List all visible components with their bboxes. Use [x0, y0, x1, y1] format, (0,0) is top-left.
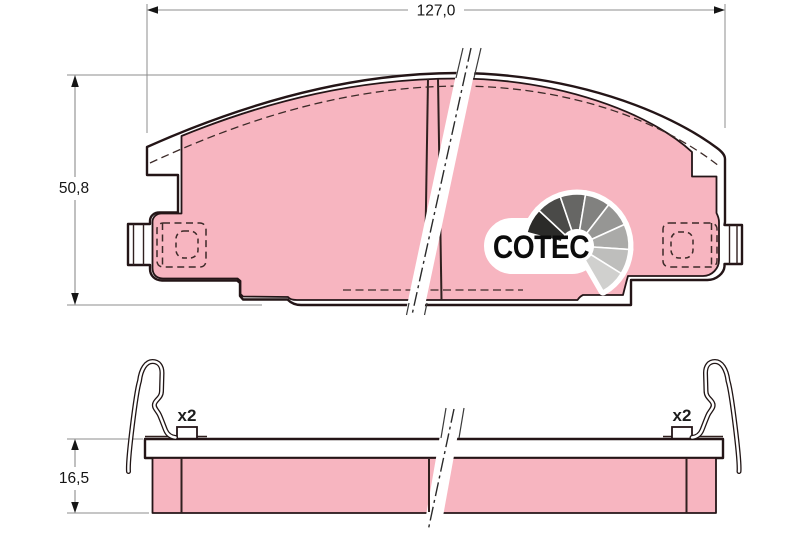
right-guide-tab — [672, 427, 692, 439]
dimension-width-value: 127,0 — [417, 3, 456, 20]
clip-count-label-left: x2 — [178, 406, 197, 425]
pad-edge-view: x2 x2 — [128, 362, 739, 533]
brake-pad-technical-drawing: 127,0 50,8 16,5 — [0, 0, 800, 533]
left-guide-tab — [177, 427, 197, 439]
dimension-thickness-value: 16,5 — [59, 470, 89, 487]
dimension-height-value: 50,8 — [59, 180, 89, 197]
pad-face-view — [128, 46, 742, 315]
backing-plate-edge — [145, 439, 723, 458]
arrowhead-up-icon — [71, 75, 79, 87]
drawing-canvas: 127,0 50,8 16,5 — [0, 0, 800, 533]
arrowhead-right-icon — [714, 6, 725, 14]
arrowhead-left-icon — [147, 6, 158, 14]
arrowhead-up-icon — [71, 439, 79, 450]
dimension-thickness: 16,5 — [59, 439, 149, 513]
clip-count-label-right: x2 — [673, 406, 692, 425]
arrowhead-down-icon — [71, 502, 79, 513]
arrowhead-down-icon — [71, 293, 79, 305]
logo-wordmark: COTEC — [493, 230, 589, 265]
